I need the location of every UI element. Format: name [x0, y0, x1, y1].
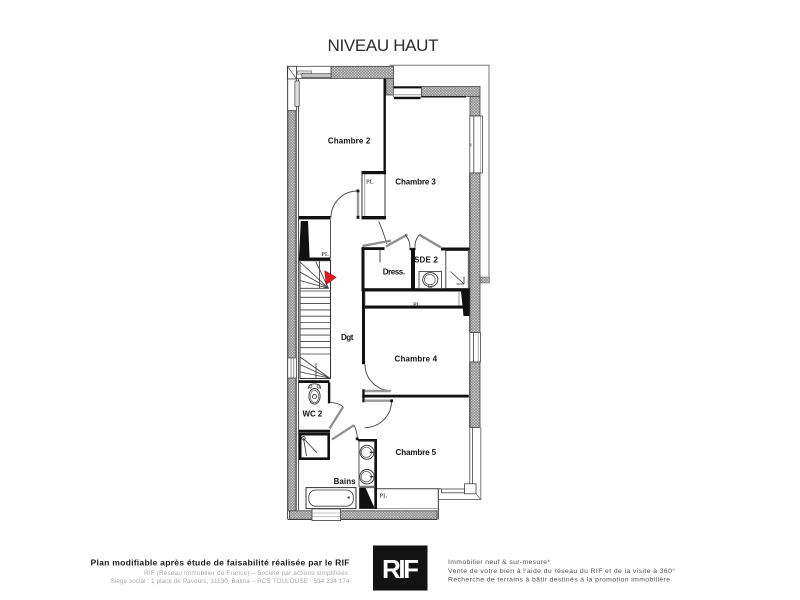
svg-text:PL: PL	[321, 251, 329, 258]
svg-text:PL: PL	[380, 493, 388, 500]
svg-text:Vente de votre bien à l'aide d: Vente de votre bien à l'aide du réseau d…	[448, 567, 675, 575]
svg-text:Immobilier neuf & sur-mesure*: Immobilier neuf & sur-mesure*	[448, 559, 550, 566]
svg-text:Siège social : 1 place de Pavo: Siège social : 1 place de Pavours, 31130…	[111, 578, 350, 585]
svg-text:PL: PL	[366, 179, 374, 186]
svg-text:WC 2: WC 2	[303, 409, 323, 418]
svg-text:NIVEAU HAUT: NIVEAU HAUT	[328, 36, 439, 55]
svg-text:Chambre 3: Chambre 3	[395, 178, 436, 187]
svg-text:Dgt: Dgt	[341, 333, 354, 342]
svg-text:RIF (Réseau Immobilier de Fran: RIF (Réseau Immobilier de France) – Soci…	[144, 570, 348, 577]
svg-text:Bains: Bains	[334, 477, 357, 486]
svg-text:Chambre 4: Chambre 4	[395, 354, 438, 363]
svg-text:Recherche de terrains à bâtir: Recherche de terrains à bâtir destinés à…	[448, 576, 670, 583]
svg-text:RIF: RIF	[382, 554, 419, 584]
svg-text:Dress.: Dress.	[383, 267, 405, 276]
svg-text:Chambre 2: Chambre 2	[328, 136, 371, 145]
svg-text:Plan modifiable après étude de: Plan modifiable après étude de faisabili…	[91, 558, 350, 568]
svg-text:SDE 2: SDE 2	[414, 256, 439, 265]
svg-text:Chambre 5: Chambre 5	[396, 448, 437, 457]
